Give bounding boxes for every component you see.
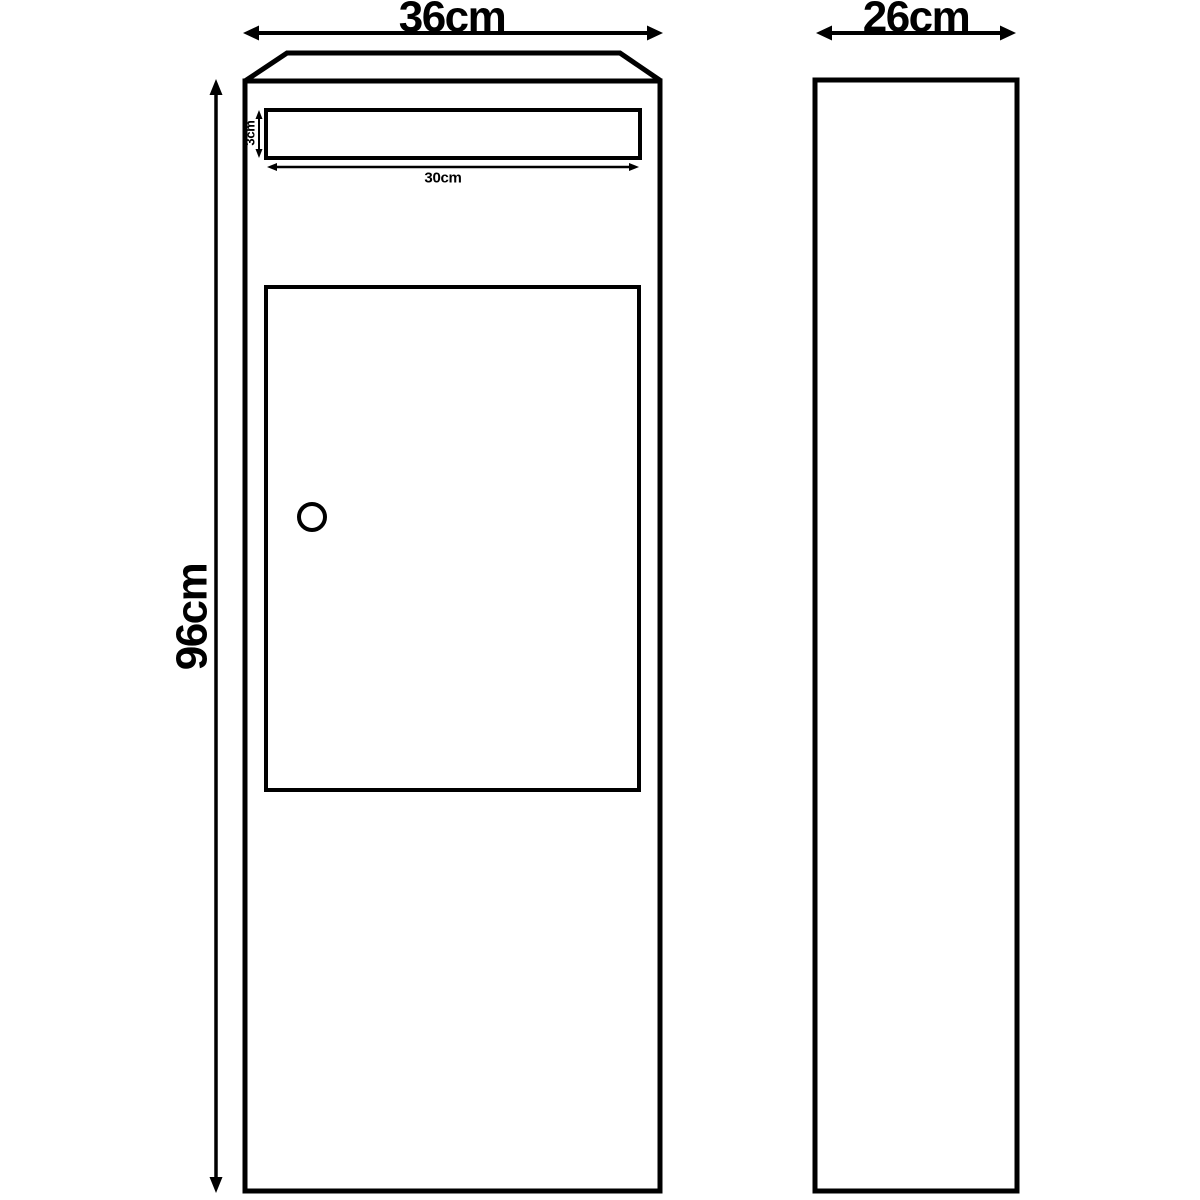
arrowhead-right-icon [647,26,663,41]
height-dimension-label: 96cm [168,564,217,671]
side-view-body-outline [815,80,1017,1191]
diagram-canvas: 36cm 26cm 96cm 30cm 3cm [0,0,1200,1200]
slot-height-dimension-label: 3cm [243,120,258,145]
slot-width-dimension: 30cm [267,163,639,187]
slot-width-dimension-label: 30cm [424,170,461,187]
front-view [245,53,661,1191]
arrowhead-right-icon [1000,26,1016,41]
width-dimension-label: 36cm [399,0,506,42]
width-dimension: 36cm [243,0,663,42]
arrowhead-up-icon [256,110,263,119]
height-dimension: 96cm [168,79,223,1193]
arrowhead-up-icon [210,79,223,95]
lock-hole [299,504,325,530]
parcel-door [266,287,639,790]
side-view [815,80,1017,1191]
arrowhead-left-icon [267,163,277,171]
front-view-lid [245,53,661,81]
arrowhead-left-icon [816,26,832,41]
depth-dimension: 26cm [816,0,1016,42]
depth-dimension-label: 26cm [863,0,970,42]
arrowhead-left-icon [243,26,259,41]
arrowhead-down-icon [256,149,263,158]
front-view-body-outline [245,81,660,1191]
arrowhead-right-icon [629,163,639,171]
arrowhead-down-icon [210,1177,223,1193]
letter-slot [266,110,640,158]
dimension-diagram: 36cm 26cm 96cm 30cm 3cm [0,0,1200,1200]
